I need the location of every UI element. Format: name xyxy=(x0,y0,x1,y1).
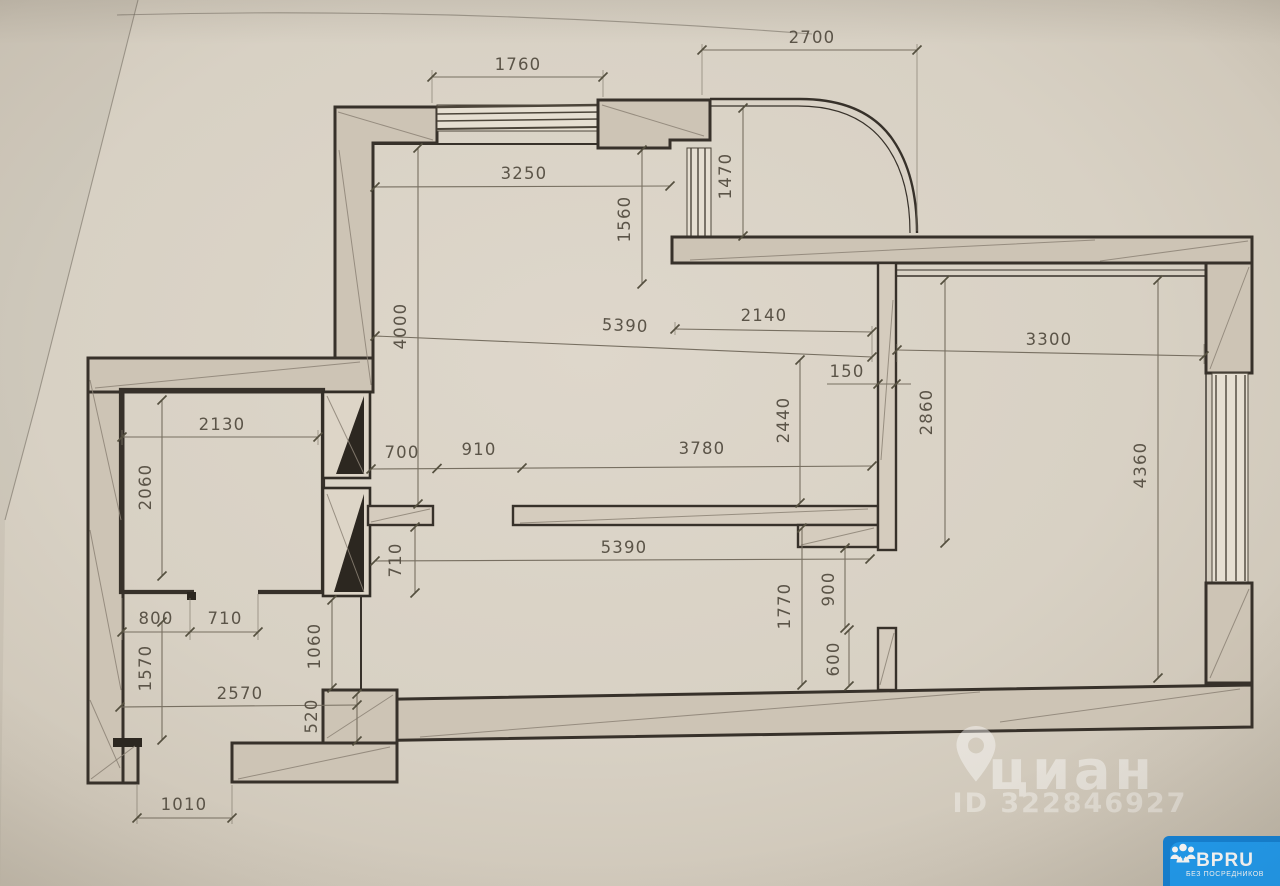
dim-window-top: 1760 xyxy=(495,55,542,74)
dim-bedroom-left-height: 2860 xyxy=(917,389,936,436)
dim-wall-segment-left: 700 xyxy=(384,443,419,462)
dim-living-top-width: 3250 xyxy=(501,164,548,183)
dim-entry-door-width: 1010 xyxy=(161,795,208,814)
cian-watermark: циан ID 322846927 xyxy=(953,726,1188,819)
dim-entry-width: 2570 xyxy=(217,684,264,703)
dim-alcove-depth: 1560 xyxy=(615,196,634,243)
dim-wall-segment-right: 3780 xyxy=(679,439,726,458)
dim-balcony-depth: 1470 xyxy=(716,153,735,200)
bpru-badge-card: BPRU БЕЗ ПОСРЕДНИКОВ xyxy=(1170,842,1280,886)
watermark-listing-id: ID 322846927 xyxy=(953,788,1188,819)
dim-bedroom-door-jamb: 600 xyxy=(824,641,843,676)
dim-balcony-width: 2700 xyxy=(789,28,836,47)
dim-doorway-width: 910 xyxy=(461,440,496,459)
dim-entry-nook-width: 800 xyxy=(138,609,173,628)
bpru-badge: BPRU БЕЗ ПОСРЕДНИКОВ xyxy=(1163,836,1280,886)
dim-bedroom-door-width: 900 xyxy=(819,571,838,606)
dim-partition-thickness: 150 xyxy=(829,362,864,381)
dim-corridor-width: 710 xyxy=(386,542,405,577)
bpru-people-lock-icon xyxy=(1170,842,1196,864)
bpru-tagline: БЕЗ ПОСРЕДНИКОВ xyxy=(1186,871,1264,878)
floor-plan-drawing: 1760 2700 3250 1560 1470 4000 2140 5390 … xyxy=(0,0,1280,886)
dim-opening-height: 2440 xyxy=(774,397,793,444)
dim-living-height: 4000 xyxy=(391,303,410,350)
dim-hall-full-width: 5390 xyxy=(601,538,648,557)
dim-kitchen-height: 2060 xyxy=(136,464,155,511)
bpru-brand: BPRU xyxy=(1196,851,1254,870)
dim-bedroom-right-height: 4360 xyxy=(1131,442,1150,489)
dim-alcove-width: 2140 xyxy=(741,306,788,325)
dim-entry-height: 1570 xyxy=(136,645,155,692)
dim-kitchen-door-width: 710 xyxy=(207,609,242,628)
dim-hall-right-height: 1770 xyxy=(775,583,794,630)
dim-living-full-width: 5390 xyxy=(601,315,649,336)
dim-shaft-offset: 1060 xyxy=(305,623,324,670)
dim-bedroom-width: 3300 xyxy=(1026,330,1073,349)
dim-step-depth: 520 xyxy=(302,698,321,733)
dim-kitchen-width: 2130 xyxy=(199,415,246,434)
floor-plan-photo: 1760 2700 3250 1560 1470 4000 2140 5390 … xyxy=(0,0,1280,886)
